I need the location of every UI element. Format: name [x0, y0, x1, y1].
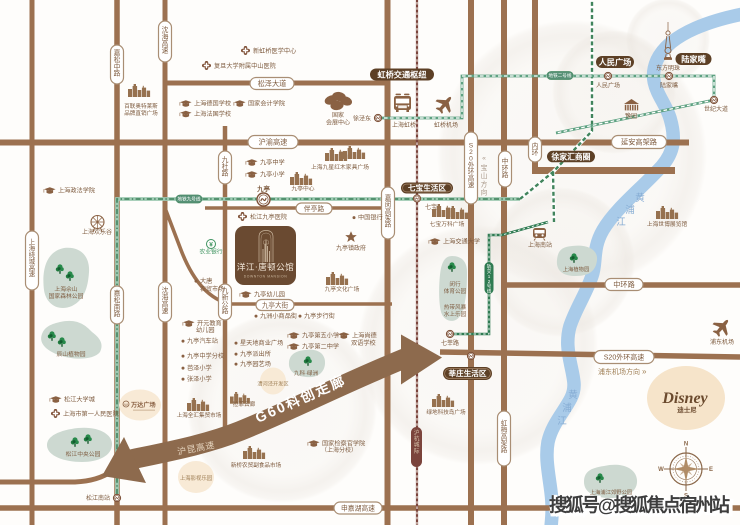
svg-text:九杜路: 九杜路 — [222, 155, 229, 178]
svg-text:黄: 黄 — [568, 389, 578, 401]
svg-text:双语学校: 双语学校 — [351, 339, 376, 347]
svg-text:拉菲云廊: 拉菲云廊 — [233, 400, 256, 408]
svg-text:九亭文化广场: 九亭文化广场 — [325, 285, 360, 293]
svg-text:上海影视乐园: 上海影视乐园 — [180, 474, 212, 482]
svg-text:上海植物园: 上海植物园 — [563, 265, 590, 273]
svg-text:会展中心: 会展中心 — [326, 119, 350, 127]
svg-text:徐家汇商圈: 徐家汇商圈 — [551, 151, 591, 161]
svg-text:七宝生活区: 七宝生活区 — [408, 183, 446, 193]
svg-text:国家森林公园: 国家森林公园 — [49, 292, 84, 300]
svg-text:九亭第五小学: 九亭第五小学 — [302, 332, 339, 340]
svg-text:迪士尼: 迪士尼 — [677, 405, 697, 414]
svg-text:伴亭路: 伴亭路 — [304, 204, 325, 213]
svg-text:九亭中学: 九亭中学 — [260, 159, 285, 167]
svg-text:辰山植物园: 辰山植物园 — [57, 350, 86, 358]
svg-text:上海交通大学: 上海交通大学 — [443, 238, 480, 246]
svg-text:上海南站: 上海南站 — [528, 241, 552, 249]
svg-text:浦东机场方向 »: 浦东机场方向 » — [598, 367, 647, 376]
svg-text:幼儿园: 幼儿园 — [196, 326, 215, 334]
svg-text:九亭镇政府: 九亭镇政府 — [336, 244, 366, 252]
svg-text:新桥农贸副食品市场: 新桥农贸副食品市场 — [231, 461, 282, 469]
svg-text:宝山方向: 宝山方向 — [481, 163, 488, 197]
svg-text:九亭中学分校: 九亭中学分校 — [187, 352, 224, 360]
svg-text:世纪大道: 世纪大道 — [704, 105, 728, 113]
svg-text:黄: 黄 — [635, 192, 645, 204]
svg-text:品牌直销广场: 品牌直销广场 — [124, 109, 158, 117]
svg-text:九洲小商品街: 九洲小商品街 — [260, 312, 297, 320]
svg-text:百联奥特莱斯: 百联奥特莱斯 — [124, 102, 158, 110]
svg-text:申嘉湖高速: 申嘉湖高速 — [341, 503, 375, 512]
svg-text:地铁九号线: 地铁九号线 — [178, 196, 201, 203]
svg-text:农贸市场: 农贸市场 — [200, 285, 224, 293]
svg-text:闵行: 闵行 — [449, 280, 461, 288]
svg-text:国家会计学院: 国家会计学院 — [248, 100, 285, 108]
svg-text:九亭园艺场: 九亭园艺场 — [240, 360, 271, 368]
svg-text:沈海高速: 沈海高速 — [162, 25, 169, 54]
svg-text:虹桥机场: 虹桥机场 — [434, 121, 458, 129]
svg-text:Disney: Disney — [661, 390, 708, 407]
svg-text:九亭步行街: 九亭步行街 — [304, 312, 335, 320]
svg-text:农业银行: 农业银行 — [199, 248, 222, 256]
svg-text:上海虹桥: 上海虹桥 — [392, 121, 416, 129]
svg-text:上海市第一人民医院: 上海市第一人民医院 — [63, 410, 119, 418]
svg-text:九亭: 九亭 — [256, 184, 270, 193]
svg-text:嘉松南路: 嘉松南路 — [114, 289, 121, 318]
svg-text:虹桥交通枢纽: 虹桥交通枢纽 — [377, 70, 426, 80]
svg-text:国家: 国家 — [332, 111, 344, 119]
svg-text:豫园: 豫园 — [625, 112, 637, 120]
svg-text:万达广场: 万达广场 — [130, 401, 156, 409]
svg-text:国家检察官学院: 国家检察官学院 — [322, 440, 365, 448]
svg-text:搜狐号@搜狐焦点宿州站: 搜狐号@搜狐焦点宿州站 — [549, 495, 731, 516]
svg-text:（上海分校）: （上海分校） — [321, 446, 357, 454]
svg-text:人民广场: 人民广场 — [596, 82, 620, 90]
svg-text:上海政法学院: 上海政法学院 — [58, 187, 95, 195]
svg-text:江: 江 — [557, 416, 567, 427]
svg-text:中环路: 中环路 — [502, 157, 509, 180]
svg-text:陆家嘴: 陆家嘴 — [660, 82, 678, 90]
svg-text:徐泾东: 徐泾东 — [353, 115, 371, 123]
svg-text:沪渝高速: 沪渝高速 — [259, 138, 288, 147]
svg-text:莘庄生活区: 莘庄生活区 — [449, 368, 487, 378]
svg-text:松江中央公园: 松江中央公园 — [66, 450, 101, 458]
svg-text:陆家嘴: 陆家嘴 — [681, 54, 706, 64]
svg-text:延安高架路: 延安高架路 — [621, 138, 657, 147]
svg-text:DOWNTON MANSION: DOWNTON MANSION — [244, 275, 288, 279]
svg-text:九科·绿洲: 九科·绿洲 — [294, 369, 319, 377]
svg-text:上海绕城高速: 上海绕城高速 — [29, 237, 36, 278]
svg-text:浦: 浦 — [562, 402, 572, 414]
svg-text:W: W — [658, 467, 664, 473]
svg-text:九亭幼儿园: 九亭幼儿园 — [254, 291, 285, 299]
svg-text:上海世博展览馆: 上海世博展览馆 — [647, 220, 688, 228]
svg-text:九亭小学: 九亭小学 — [260, 171, 285, 179]
svg-text:上海佘山: 上海佘山 — [54, 285, 77, 293]
svg-text:上海九星红木家具广场: 上海九星红木家具广场 — [311, 163, 369, 171]
svg-text:张泽小学: 张泽小学 — [187, 375, 212, 383]
svg-text:虹梅高架路: 虹梅高架路 — [501, 419, 508, 454]
svg-text:W: W — [124, 402, 128, 407]
svg-text:上海欢乐谷: 上海欢乐谷 — [82, 228, 112, 236]
svg-text:九亭汽车站: 九亭汽车站 — [187, 337, 218, 345]
svg-text:浦东机场: 浦东机场 — [710, 338, 734, 346]
svg-text:上海法国学校: 上海法国学校 — [194, 110, 231, 118]
svg-text:¥: ¥ — [209, 241, 213, 248]
svg-text:松江九亭医院: 松江九亭医院 — [250, 213, 287, 221]
svg-text:S20外环高速: S20外环高速 — [604, 353, 644, 362]
svg-text:E: E — [709, 467, 713, 473]
svg-text:九亭大街: 九亭大街 — [262, 300, 289, 309]
svg-text:地铁二号线: 地铁二号线 — [549, 72, 572, 79]
svg-text:水上乐园: 水上乐园 — [444, 310, 467, 318]
svg-text:体育公园: 体育公园 — [444, 287, 467, 295]
svg-text:«: « — [482, 155, 486, 162]
svg-text:浦: 浦 — [625, 204, 635, 216]
svg-text:人民广场: 人民广场 — [599, 57, 632, 67]
svg-text:九亭派出所: 九亭派出所 — [240, 350, 271, 358]
svg-text:中环路: 中环路 — [613, 280, 635, 289]
svg-text:九亭第二中学: 九亭第二中学 — [302, 343, 339, 351]
svg-text:嘉松中路: 嘉松中路 — [114, 48, 121, 77]
svg-text:新虹桥医学中心: 新虹桥医学中心 — [253, 47, 296, 55]
svg-text:松江南站: 松江南站 — [86, 494, 110, 502]
svg-text:热带风暴: 热带风暴 — [444, 303, 467, 311]
svg-text:大唐: 大唐 — [200, 277, 212, 285]
svg-text:九亭中心: 九亭中心 — [291, 185, 314, 193]
svg-text:漕河泾开发区: 漕河泾开发区 — [257, 380, 288, 388]
svg-text:嘉闵高架路: 嘉闵高架路 — [385, 193, 392, 228]
svg-text:上海德国学校: 上海德国学校 — [194, 100, 231, 108]
svg-text:星天地商业广场: 星天地商业广场 — [240, 339, 283, 347]
svg-text:上海尚德: 上海尚德 — [352, 332, 377, 340]
svg-text:中国银行: 中国银行 — [358, 214, 383, 222]
svg-text:七宝万科广场: 七宝万科广场 — [430, 220, 465, 228]
svg-text:洋江·唐顿公馆: 洋江·唐顿公馆 — [237, 261, 294, 272]
svg-text:江: 江 — [616, 217, 626, 228]
svg-text:东方明珠: 东方明珠 — [656, 64, 680, 72]
svg-text:N: N — [684, 442, 688, 448]
svg-text:上海全汇集贸市场: 上海全汇集贸市场 — [177, 411, 222, 419]
svg-text:内环: 内环 — [532, 141, 539, 157]
svg-text:复旦大学附属中山医院: 复旦大学附属中山医院 — [214, 62, 276, 70]
svg-text:七莘路: 七莘路 — [441, 339, 459, 347]
svg-text:松江大学城: 松江大学城 — [64, 396, 95, 404]
svg-text:沪杭城际: 沪杭城际 — [414, 429, 420, 455]
svg-text:沈海高速: 沈海高速 — [162, 286, 169, 315]
svg-text:芭泽小学: 芭泽小学 — [187, 364, 212, 372]
svg-text:绿地科技岛广场: 绿地科技岛广场 — [426, 408, 466, 416]
svg-text:松泽大道: 松泽大道 — [258, 79, 287, 88]
